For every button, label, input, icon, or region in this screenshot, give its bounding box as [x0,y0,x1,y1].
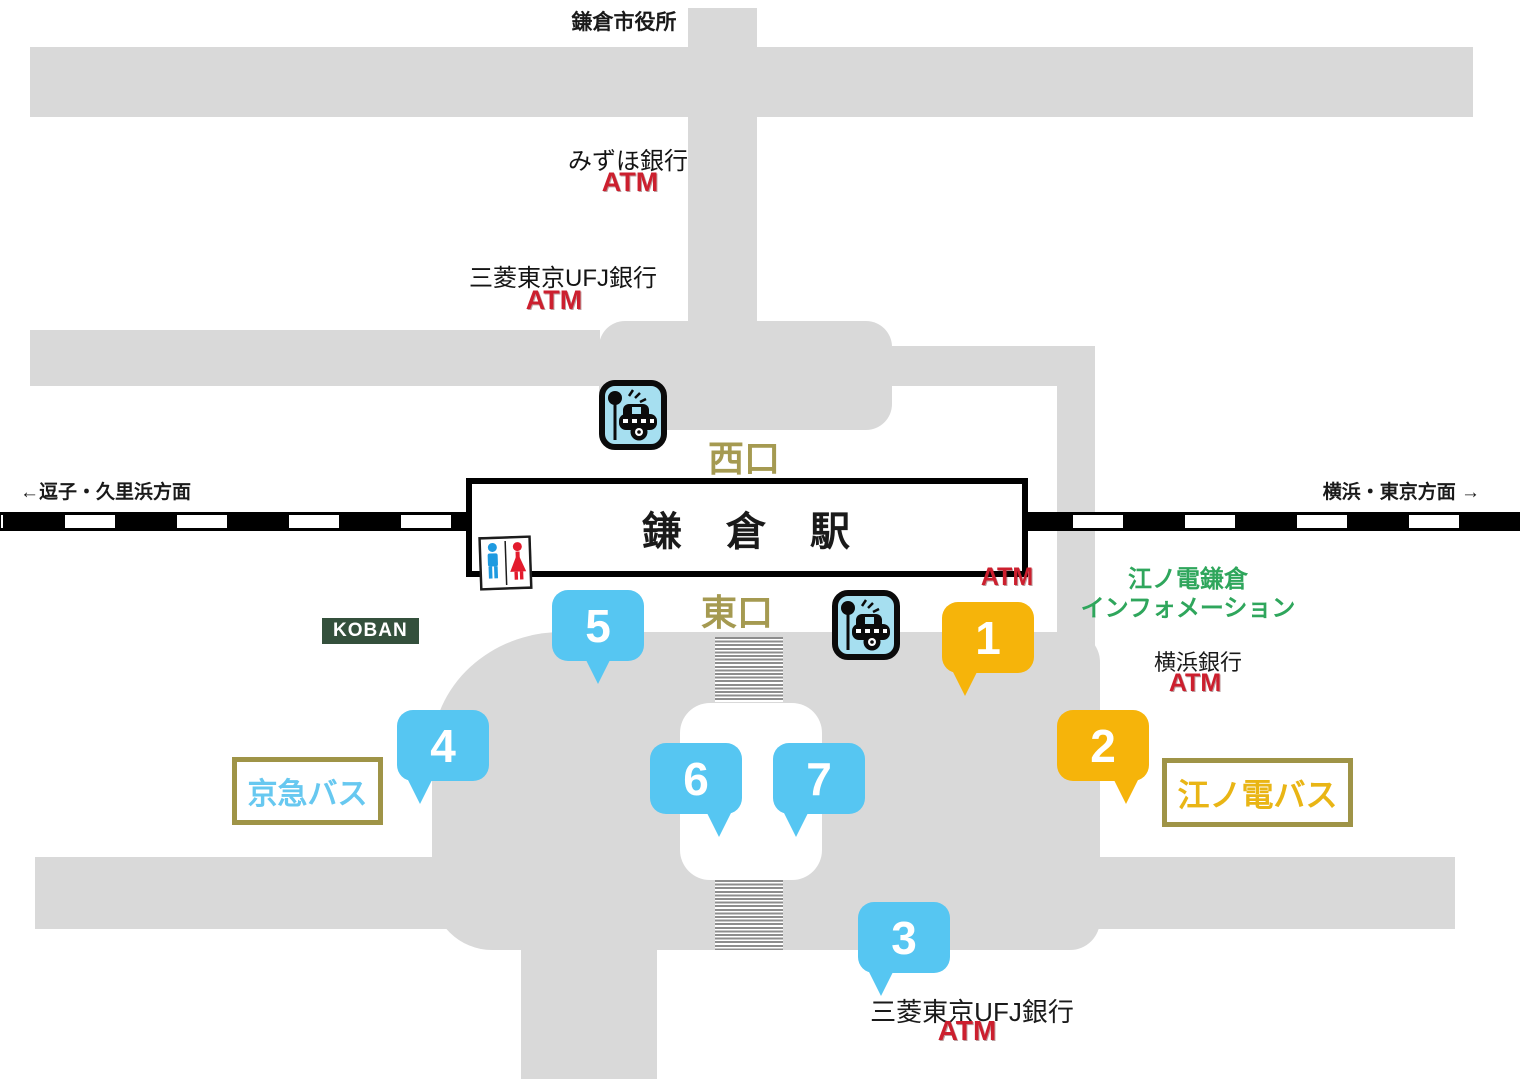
crosswalk-south [715,880,783,950]
label-mizuho-atm: ATM [602,167,658,198]
label-mufg-south-atm: ATM [938,1015,997,1047]
bus-stop-3: 3 [858,902,950,973]
crosswalk-north [715,637,783,702]
label-station-east-atm: ATM [981,563,1033,592]
label-direction-yokohama: 横浜・東京方面 → [1323,477,1480,504]
marker-tail [952,670,978,696]
bus-stop-number: 3 [891,911,917,965]
marker-tail [585,658,611,684]
road-west [30,330,600,386]
bus-stop-number: 4 [430,719,456,773]
bus-stop-6: 6 [650,743,742,814]
bus-stop-2: 2 [1057,710,1149,781]
station-area-map: 鎌 倉 駅 ←逗子・久里浜方面 横浜・東京方面 → 西口 東口 鎌倉市役所 みず… [0,0,1520,1079]
bus-stop-1: 1 [942,602,1034,673]
sign-enoden-bus-label: 江ノ電バス [1177,770,1337,816]
sign-keikyu-bus-label: 京急バス [248,769,368,813]
label-city-hall: 鎌倉市役所 [572,6,677,36]
label-direction-zushi: ←逗子・久里浜方面 [20,477,191,504]
label-enoden-information-line2: インフォメーション [1081,594,1296,623]
marker-tail [407,778,433,804]
station-name: 鎌 倉 駅 [642,499,852,557]
bus-stop-number: 7 [806,752,832,806]
taxi-stand-icon-east [832,590,900,668]
marker-tail [706,811,732,837]
marker-tail [1113,778,1139,804]
bus-stop-number: 2 [1090,719,1116,773]
marker-tail [868,970,894,996]
label-enoden-information: 江ノ電鎌倉 インフォメーション [1081,565,1296,623]
restroom-icon [478,535,533,596]
label-east-exit: 東口 [701,584,773,636]
road-bottom-vertical [521,929,657,1079]
sign-enoden-bus: 江ノ電バス [1162,758,1353,827]
label-yokohama-bank-atm: ATM [1169,669,1221,698]
bus-stop-number: 1 [975,611,1001,665]
sign-koban: KOBAN [322,618,419,644]
label-enoden-information-line1: 江ノ電鎌倉 [1081,565,1296,594]
taxi-stand-icon-west [599,380,667,458]
label-mufg-west-atm: ATM [526,285,582,316]
bus-stop-4: 4 [397,710,489,781]
station-building: 鎌 倉 駅 [466,478,1028,577]
bus-stop-7: 7 [773,743,865,814]
bus-stop-number: 6 [683,752,709,806]
marker-tail [783,811,809,837]
sign-keikyu-bus: 京急バス [232,757,383,825]
bus-stop-5: 5 [552,590,644,661]
bus-stop-number: 5 [585,599,611,653]
label-west-exit: 西口 [708,430,780,482]
